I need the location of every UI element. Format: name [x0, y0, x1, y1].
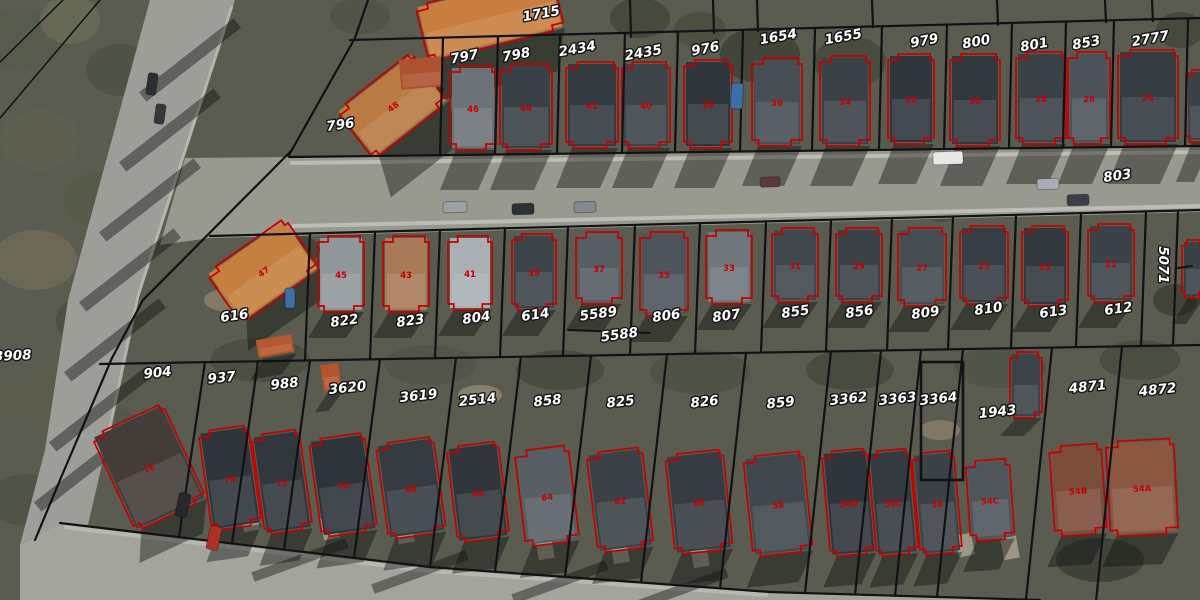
- house-number-40: 40: [640, 102, 652, 112]
- parcel-label-825: 825: [606, 393, 636, 412]
- house-number-25: 25: [978, 262, 990, 272]
- car: [574, 201, 596, 213]
- house-number-24: 24: [1142, 94, 1154, 104]
- car: [1067, 194, 1089, 206]
- house-number-29: 29: [853, 262, 865, 272]
- house-number-68: 68: [405, 484, 418, 496]
- building-62: 62: [586, 447, 654, 553]
- building-42: 42: [566, 62, 618, 148]
- house-number-44: 44: [520, 104, 532, 114]
- car: [760, 177, 780, 188]
- house-number-70: 70: [337, 481, 350, 493]
- house-number-39: 39: [528, 269, 540, 279]
- building-45: 45: [318, 236, 364, 312]
- house-number-23: 23: [1039, 263, 1051, 273]
- building-edge: [1182, 240, 1200, 298]
- building-27: 27: [898, 228, 946, 306]
- house-number-56D: 56D: [839, 499, 859, 511]
- house-number-64: 64: [541, 492, 554, 503]
- building-36: 36: [752, 58, 802, 146]
- house-number-60: 60: [693, 498, 706, 509]
- house-number-37: 37: [593, 265, 605, 275]
- building-43: 43: [383, 236, 429, 312]
- house-number-56: 56: [931, 499, 944, 510]
- building-46: 46: [450, 66, 496, 150]
- building-32: 32: [888, 54, 934, 144]
- house-number-34: 34: [839, 98, 851, 108]
- car: [285, 288, 295, 308]
- house-number-41: 41: [464, 270, 476, 280]
- building-34: 34: [820, 56, 870, 146]
- house-number-54B: 54B: [1069, 486, 1088, 497]
- building-41: 41: [448, 236, 492, 310]
- building-31: 31: [772, 228, 818, 302]
- building-40: 40: [622, 62, 670, 148]
- house-number-30: 30: [969, 97, 981, 107]
- car: [730, 83, 743, 110]
- house-number-27: 27: [916, 264, 928, 274]
- orange-barn-796: [399, 56, 443, 90]
- building-35: 35: [640, 232, 688, 316]
- aerial-map-viewport[interactable]: 4846444240383634323028262447454341393735…: [0, 0, 1200, 600]
- house-number-28: 28: [1035, 95, 1047, 105]
- building-54C: 54C: [965, 459, 1014, 542]
- house-number-32: 32: [905, 96, 917, 106]
- house-number-72: 72: [276, 478, 289, 490]
- parcel-label-858: 858: [533, 392, 563, 411]
- house-number-43: 43: [400, 271, 412, 281]
- house-number-46: 46: [467, 105, 479, 115]
- building-21: 21: [1088, 224, 1134, 302]
- building-29: 29: [836, 228, 882, 302]
- parcel-label-904: 904: [143, 364, 173, 383]
- building-33: 33: [706, 230, 752, 304]
- parcel-label-937: 937: [207, 369, 237, 388]
- parcel-label-3908: 3908: [0, 347, 32, 365]
- house-number-38: 38: [702, 101, 714, 111]
- house-number-31: 31: [789, 262, 801, 272]
- building-37: 37: [576, 232, 622, 304]
- house-number-62: 62: [614, 496, 627, 507]
- house-number-42: 42: [586, 102, 598, 112]
- building-23: 23: [1022, 226, 1068, 306]
- building-44: 44: [500, 64, 552, 150]
- house-number-33: 33: [723, 264, 735, 274]
- house-number-74: 74: [224, 474, 237, 486]
- building-54B: 54B: [1049, 443, 1107, 536]
- parcel-label-826: 826: [690, 393, 720, 412]
- car: [933, 151, 963, 165]
- building-30: 30: [950, 54, 1000, 146]
- house-number-36: 36: [771, 99, 783, 109]
- building-54A: 54A: [1106, 438, 1179, 536]
- building-24: 24: [1118, 50, 1178, 144]
- building-edge: [1186, 70, 1200, 142]
- building-56C: 56C: [868, 448, 919, 556]
- building-39: 39: [512, 234, 556, 310]
- building-26: 26: [1068, 52, 1110, 144]
- house-number-54C: 54C: [981, 496, 1000, 507]
- building-25: 25: [960, 226, 1008, 304]
- house-number-21: 21: [1105, 260, 1117, 270]
- building-38: 38: [684, 60, 732, 148]
- house-number-58: 58: [772, 500, 785, 511]
- house-number-54A: 54A: [1133, 484, 1152, 495]
- house-number-26: 26: [1083, 95, 1095, 105]
- aerial-cadastral-map[interactable]: 4846444240383634323028262447454341393735…: [0, 0, 1200, 600]
- house-number-56C: 56C: [884, 499, 903, 511]
- parcel-label-988: 988: [270, 375, 300, 394]
- parcel-label-859: 859: [766, 394, 796, 413]
- house-number-35: 35: [658, 271, 670, 281]
- building-28: 28: [1016, 52, 1066, 144]
- building-56: 56: [912, 450, 963, 555]
- car: [443, 201, 467, 213]
- house-number-45: 45: [335, 271, 347, 281]
- car: [512, 203, 534, 215]
- parcel-label-5071: 5071: [1155, 246, 1171, 284]
- house-number-66: 66: [472, 488, 485, 499]
- car: [1037, 178, 1059, 190]
